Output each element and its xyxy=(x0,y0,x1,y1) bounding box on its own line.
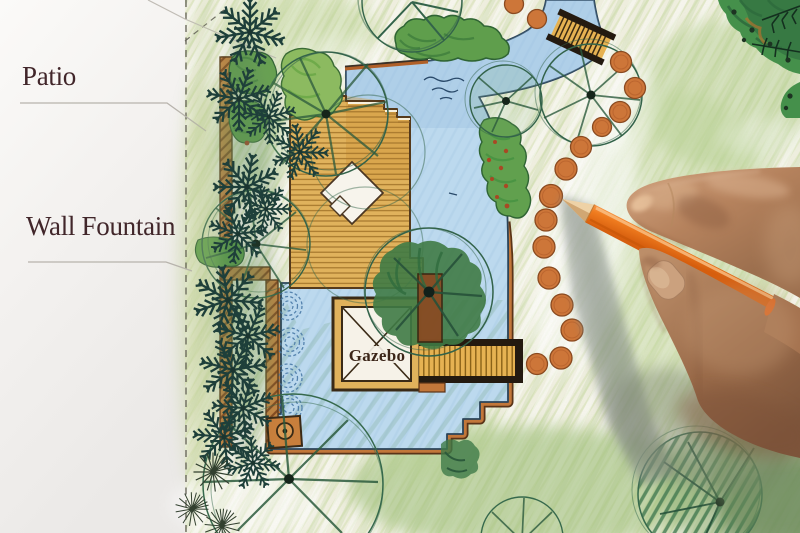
svg-text:Gazebo: Gazebo xyxy=(349,346,406,365)
svg-text:Patio: Patio xyxy=(22,61,76,91)
svg-text:Wall Fountain: Wall Fountain xyxy=(26,211,176,241)
